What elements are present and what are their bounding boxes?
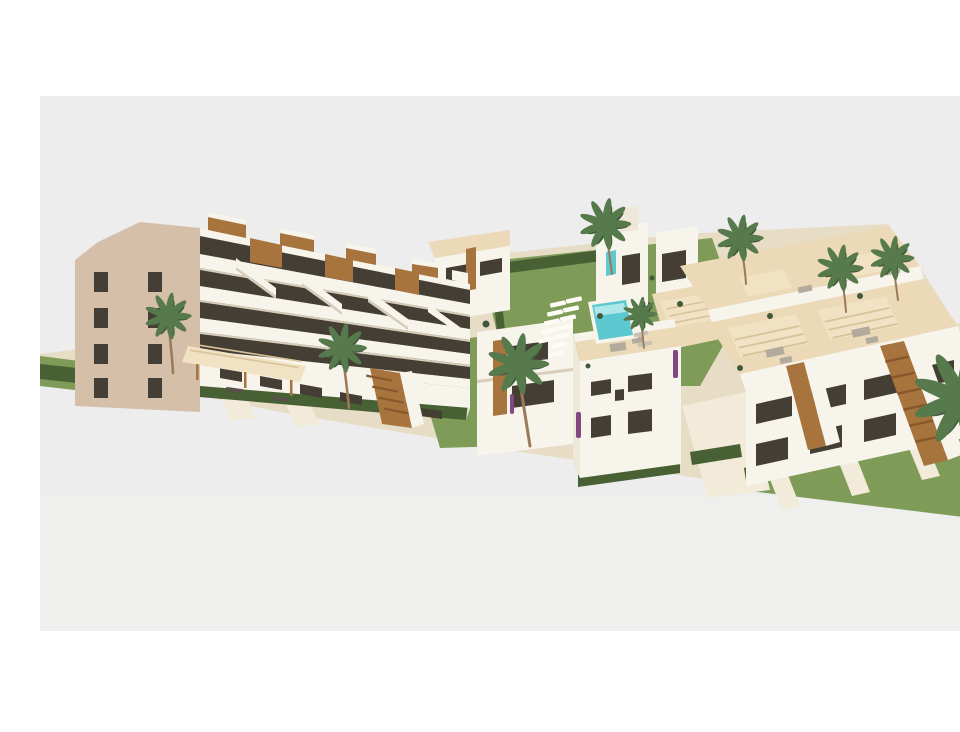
white-townhouse-front <box>573 319 681 478</box>
render-figure: Aerial 3D architectural rendering of a n… <box>40 16 960 716</box>
render-scene: Aerial 3D architectural rendering of a n… <box>40 16 960 716</box>
studio-sky-lower <box>40 496 960 631</box>
